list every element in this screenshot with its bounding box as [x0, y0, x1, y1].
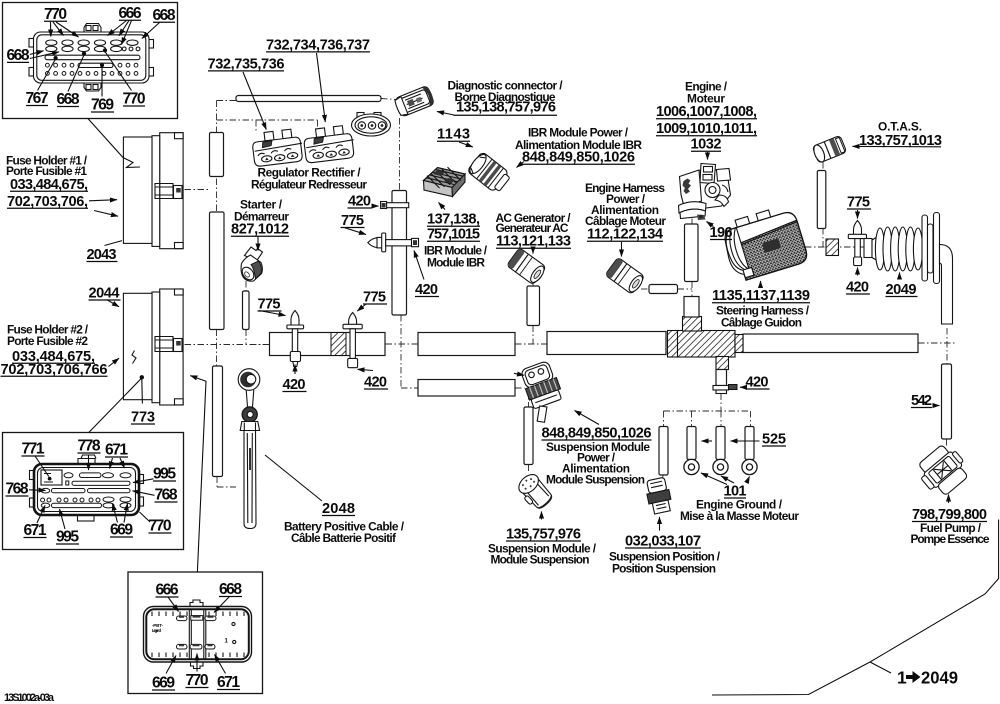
svg-text:Démarreur: Démarreur [234, 210, 289, 224]
svg-text:032,033,107: 032,033,107 [625, 534, 701, 550]
svg-text:Régulateur Redresseur: Régulateur Redresseur [251, 178, 367, 192]
svg-text:768: 768 [6, 481, 29, 498]
svg-text:995: 995 [153, 466, 176, 483]
svg-text:666: 666 [119, 5, 142, 22]
svg-text:420: 420 [283, 377, 306, 393]
svg-text:775: 775 [258, 297, 281, 313]
svg-text:732,734,736,737: 732,734,736,737 [266, 38, 370, 54]
svg-text:1032: 1032 [691, 137, 722, 153]
svg-text:757,1015: 757,1015 [427, 227, 480, 243]
svg-text:Module Suspension: Module Suspension [546, 473, 645, 487]
svg-text:420: 420 [348, 194, 371, 210]
svg-text:112,122,134: 112,122,134 [587, 227, 664, 243]
svg-text:033,484,675,: 033,484,675, [10, 177, 88, 193]
svg-text:Câblage Moteur: Câblage Moteur [585, 214, 666, 228]
svg-text:Module IBR: Module IBR [427, 256, 485, 270]
svg-text:Pompe Essence: Pompe Essence [911, 532, 990, 546]
svg-text:420: 420 [415, 282, 438, 298]
svg-text:732,735,736: 732,735,736 [208, 57, 285, 73]
svg-text:Porte Fusible #2: Porte Fusible #2 [7, 334, 88, 348]
svg-text:769: 769 [91, 97, 114, 114]
svg-text:1: 1 [897, 668, 907, 688]
svg-text:775: 775 [341, 213, 364, 229]
svg-text:768: 768 [155, 487, 178, 504]
svg-text:671: 671 [217, 674, 240, 691]
svg-text:133,757,1013: 133,757,1013 [859, 133, 942, 149]
svg-text:773: 773 [131, 410, 155, 426]
svg-text:671: 671 [24, 522, 47, 539]
svg-text:778: 778 [78, 438, 101, 455]
svg-text:2049: 2049 [921, 668, 958, 688]
svg-text:668: 668 [153, 7, 176, 24]
svg-text:770: 770 [44, 6, 67, 23]
svg-text:Module Suspension: Module Suspension [491, 553, 590, 567]
svg-text:Porte Fusible #1: Porte Fusible #1 [6, 164, 87, 178]
svg-text:420: 420 [746, 375, 769, 391]
svg-text:771: 771 [22, 441, 45, 458]
svg-text:Câble Batterie Positif: Câble Batterie Positif [291, 531, 396, 545]
svg-text:196: 196 [710, 225, 733, 241]
svg-text:767: 767 [26, 90, 49, 107]
svg-text:671: 671 [105, 442, 128, 459]
svg-text:668: 668 [57, 91, 80, 108]
svg-text:1009,1010,1011,: 1009,1010,1011, [656, 121, 757, 137]
svg-text:668: 668 [7, 47, 30, 64]
svg-text:525: 525 [762, 432, 786, 448]
svg-text:775: 775 [847, 195, 870, 211]
svg-text:669: 669 [110, 522, 133, 539]
svg-text:702,703,706,: 702,703,706, [7, 194, 88, 210]
svg-text:Legend: Legend [152, 628, 161, 633]
svg-text:Alimentation Module IBR: Alimentation Module IBR [515, 138, 642, 152]
svg-text:Borne Diagnostique: Borne Diagnostique [455, 90, 556, 104]
svg-text:113,121,133: 113,121,133 [496, 234, 571, 250]
svg-text:137,138,: 137,138, [427, 212, 480, 228]
svg-text:13S1002a-03a: 13S1002a-03a [4, 692, 55, 704]
svg-text:Position Suspension: Position Suspension [612, 562, 716, 576]
svg-text:995: 995 [56, 529, 79, 546]
svg-text:770: 770 [123, 91, 146, 108]
svg-text:2044: 2044 [89, 286, 121, 302]
svg-text:702,703,706,766: 702,703,706,766 [1, 362, 108, 378]
svg-text:Generateur AC: Generateur AC [496, 221, 569, 235]
svg-text:775: 775 [363, 290, 386, 306]
svg-text:135,757,976: 135,757,976 [506, 527, 581, 543]
svg-text:O.T.A.S.: O.T.A.S. [878, 120, 922, 134]
svg-text:420: 420 [364, 375, 387, 391]
svg-text:666: 666 [156, 582, 179, 599]
svg-text:1135,1137,1139: 1135,1137,1139 [712, 288, 810, 304]
svg-text:770: 770 [186, 672, 209, 689]
svg-text:2043: 2043 [87, 247, 117, 263]
svg-text:1143: 1143 [437, 127, 470, 143]
svg-text:827,1012: 827,1012 [231, 222, 289, 238]
svg-text:2048: 2048 [322, 501, 355, 517]
svg-text:420: 420 [846, 280, 869, 296]
svg-text:Mise à la Masse Moteur: Mise à la Masse Moteur [680, 509, 799, 523]
svg-text:542: 542 [911, 393, 932, 409]
svg-text:Moteur: Moteur [687, 92, 725, 106]
svg-text:668: 668 [219, 581, 242, 598]
svg-text:Câblage Guidon: Câblage Guidon [721, 316, 802, 330]
svg-text:2049: 2049 [886, 282, 917, 298]
svg-text:1006,1007,1008,: 1006,1007,1008, [656, 104, 757, 120]
svg-text:669: 669 [152, 675, 175, 692]
svg-text:770: 770 [149, 518, 172, 535]
